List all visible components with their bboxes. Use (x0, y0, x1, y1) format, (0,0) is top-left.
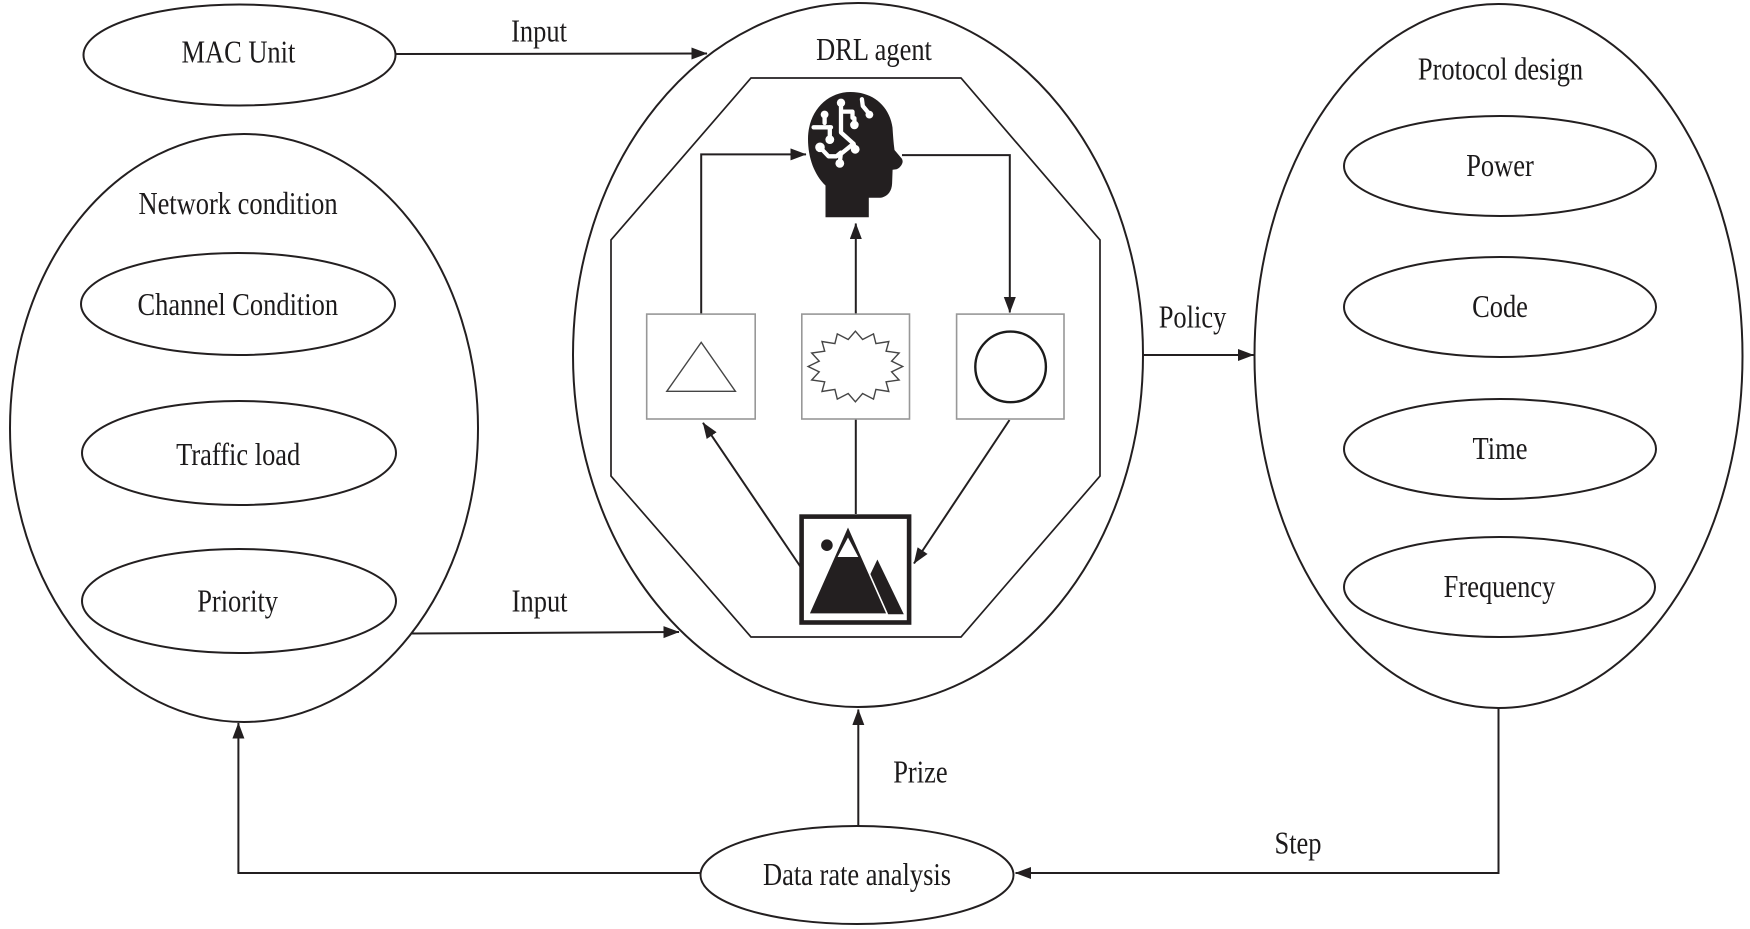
svg-text:MAC Unit: MAC Unit (181, 36, 295, 71)
svg-text:Protocol design: Protocol design (1418, 52, 1584, 87)
svg-text:Policy: Policy (1159, 300, 1227, 335)
svg-text:Network condition: Network condition (138, 187, 337, 222)
svg-text:DRL agent: DRL agent (816, 33, 932, 68)
svg-text:Frequency: Frequency (1444, 570, 1556, 605)
svg-text:Code: Code (1472, 290, 1528, 325)
svg-text:Power: Power (1466, 149, 1534, 184)
svg-text:Input: Input (511, 14, 567, 49)
svg-text:Data rate analysis: Data rate analysis (763, 858, 951, 893)
svg-text:Traffic load: Traffic load (176, 438, 301, 473)
svg-text:Time: Time (1473, 432, 1528, 467)
svg-text:Channel Condition: Channel Condition (138, 288, 339, 323)
svg-text:Priority: Priority (197, 584, 278, 619)
svg-text:Step: Step (1274, 826, 1321, 861)
svg-text:Prize: Prize (893, 755, 947, 790)
svg-text:Input: Input (512, 584, 568, 619)
